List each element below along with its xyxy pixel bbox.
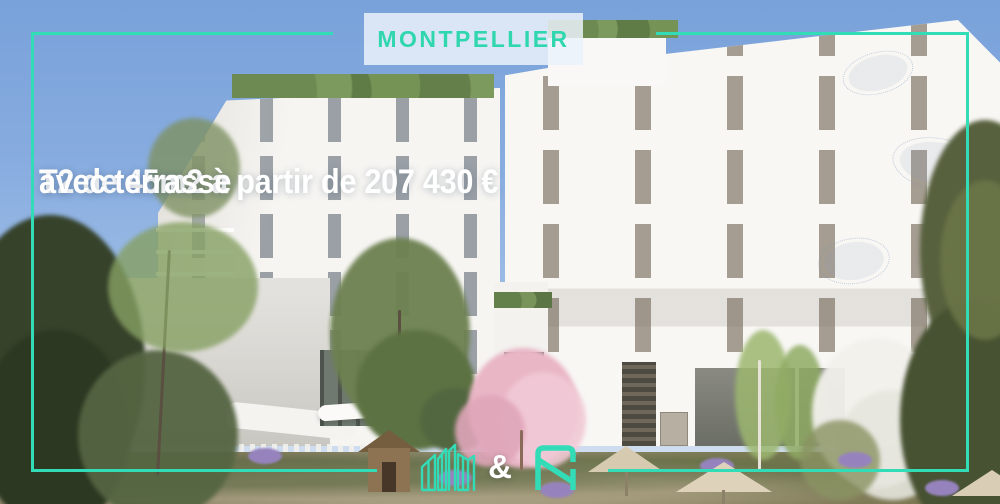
frame-line-left xyxy=(31,32,34,472)
frame-line-right xyxy=(966,32,969,472)
city-badge: MONTPELLIER xyxy=(364,13,583,65)
city-badge-label: MONTPELLIER xyxy=(377,26,569,53)
frame-line-top-left xyxy=(31,32,333,35)
ad-canvas: MONTPELLIER T2 de 45m2 à partir de 207 4… xyxy=(0,0,1000,504)
roof-terrace-plants xyxy=(232,74,494,98)
frame-line-top-right xyxy=(656,32,969,35)
roof-shrubs xyxy=(494,292,552,308)
r-monogram-icon xyxy=(532,442,579,491)
offer-headline-line2: avec terrasse xyxy=(39,160,231,205)
ampersand-separator: & xyxy=(483,448,517,486)
logo-row: & xyxy=(0,438,1000,496)
wood-slat-panel xyxy=(622,362,656,446)
tree-canopy xyxy=(108,222,258,352)
buildings-skyline-icon xyxy=(419,441,477,492)
